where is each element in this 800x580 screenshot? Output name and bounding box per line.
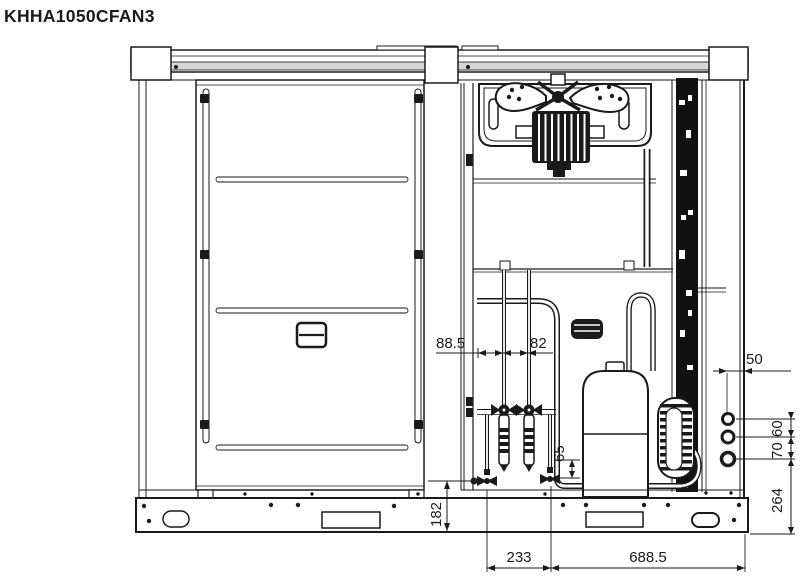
service-door-panel	[196, 80, 424, 490]
dim-holes-base-height-label: 264	[769, 488, 786, 513]
compressor	[583, 362, 648, 497]
model-number-title: KHHA1050CFAN3	[4, 6, 155, 26]
pipe-knockout-holes	[722, 414, 735, 466]
muffler	[571, 319, 603, 339]
suction-accumulator	[658, 398, 694, 478]
dim-base-span-left-label: 233	[506, 549, 531, 566]
door-handle	[297, 323, 326, 347]
unit-side-view-drawing: KHHA1050CFAN3	[0, 0, 800, 580]
technical-drawing-page: KHHA1050CFAN3	[0, 0, 800, 580]
dim-holes-edge-offset-label: 50	[746, 351, 763, 368]
dim-valve-b-height-label: 65	[551, 445, 568, 462]
dim-valve-a-height-label: 182	[428, 502, 445, 527]
dim-valve-offset-label: 88.5	[436, 335, 465, 352]
rail-end-block-left	[131, 47, 171, 80]
dim-base-span-right-label: 688.5	[629, 549, 667, 566]
dim-hole-gap-bottom-label: 70	[769, 442, 786, 459]
rail-end-block-right	[709, 47, 748, 80]
dim-valve-spacing-label: 82	[530, 335, 547, 352]
dim-hole-gap-top-label: 60	[769, 420, 786, 437]
rail-center-block	[425, 47, 458, 83]
